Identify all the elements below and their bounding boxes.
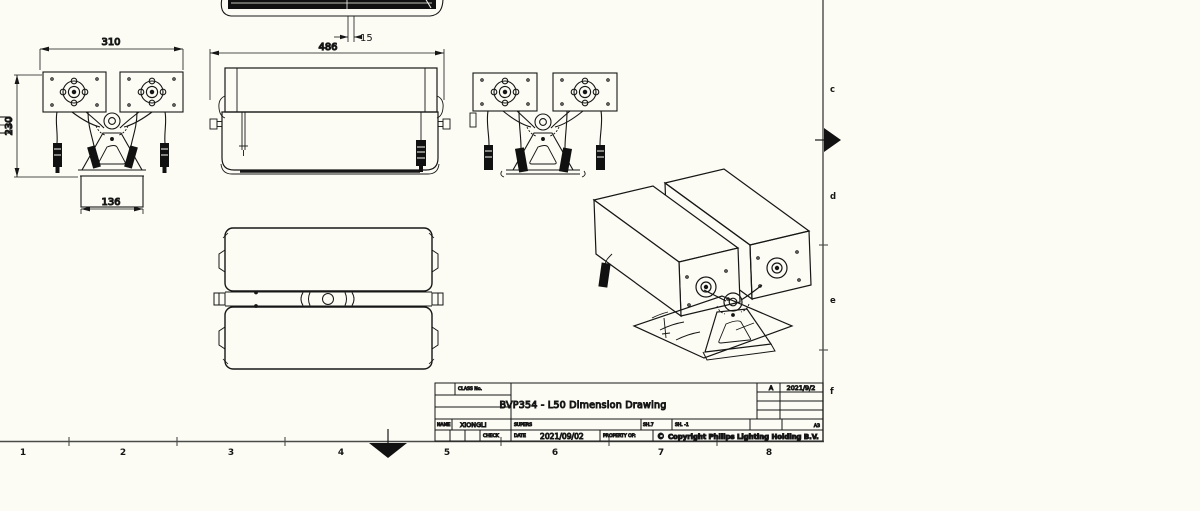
zone-col-1: 1 xyxy=(20,448,26,458)
paper-size: A3 xyxy=(814,423,820,429)
rear-left-plate xyxy=(470,73,537,127)
date-label: DATE xyxy=(514,433,526,439)
scale-value: SH.7 xyxy=(643,422,654,428)
title-block: CLASS No. BVP354 - L50 Dimension Drawing… xyxy=(435,383,823,441)
dim-136-label: 136 xyxy=(101,197,120,208)
copyright-text: Copyright Philips Lighting Holding B.V. xyxy=(668,433,819,441)
front-left-plate xyxy=(43,72,106,112)
zone-col-2: 2 xyxy=(120,448,126,458)
zone-col-3: 3 xyxy=(228,448,234,458)
zone-col-4: 4 xyxy=(338,448,344,458)
zone-row-d: d xyxy=(830,192,836,202)
top-edge-view: 15 xyxy=(221,0,443,44)
property-label: PROPERTY OF: xyxy=(603,433,636,439)
supervisor-label: SUPERS xyxy=(514,422,532,428)
zone-row-f: f xyxy=(830,387,834,397)
revision-date: 2021/9/2 xyxy=(787,384,816,392)
sheet-centre-marker-right xyxy=(815,128,841,152)
rear-base-bracket xyxy=(501,133,585,177)
side-view: 486 xyxy=(210,42,450,174)
drawing-sheet: 1 2 3 4 5 6 7 8 c d e f 310 230 xyxy=(0,0,1200,511)
drawing-title: BVP354 - L50 Dimension Drawing xyxy=(499,400,666,411)
lens-bar xyxy=(228,0,436,9)
zone-col-5: 5 xyxy=(444,448,450,458)
date-value: 2021/09/02 xyxy=(540,432,584,441)
zone-col-8: 8 xyxy=(766,448,772,458)
rear-right-plate xyxy=(553,73,617,111)
dim-310 xyxy=(40,47,183,70)
plan-centre-rail xyxy=(214,291,443,307)
zone-row-e: e xyxy=(830,296,836,306)
front-view: 310 230 xyxy=(0,37,183,214)
plan-head-bottom xyxy=(225,307,432,369)
plan-view xyxy=(214,228,443,369)
copyright-symbol: © xyxy=(657,432,665,441)
side-pin xyxy=(239,112,248,156)
sheet-centre-marker-bottom xyxy=(369,429,407,458)
zone-col-6: 6 xyxy=(552,448,558,458)
dim-15-label: 15 xyxy=(360,33,373,44)
rear-yoke-bracket xyxy=(503,111,583,136)
dim-310-label: 310 xyxy=(101,37,120,48)
rear-cables xyxy=(484,111,605,173)
revision-rev: A xyxy=(769,384,774,392)
front-base-bracket xyxy=(78,133,146,207)
class-label: CLASS No. xyxy=(458,386,482,392)
dim-486 xyxy=(210,49,444,100)
check-label: CHECK xyxy=(483,433,500,439)
rear-view xyxy=(470,73,617,177)
plan-side-tabs xyxy=(219,233,438,364)
cad-drawing-canvas: 1 2 3 4 5 6 7 8 c d e f 310 230 xyxy=(0,0,1200,511)
dim-486-label: 486 xyxy=(318,42,337,53)
zone-col-7: 7 xyxy=(658,448,664,458)
front-right-plate xyxy=(120,72,183,112)
dim-15 xyxy=(334,16,362,42)
front-yoke-bracket xyxy=(72,112,152,135)
name-value: XIONGLI xyxy=(460,421,487,429)
isometric-view xyxy=(594,169,811,360)
name-label: NAME xyxy=(437,422,451,428)
side-cable xyxy=(416,112,426,172)
plan-head-top xyxy=(225,228,432,291)
sheet-value: SH. -1 xyxy=(675,422,689,428)
sheet-frame: 1 2 3 4 5 6 7 8 c d e f xyxy=(0,0,841,458)
zone-row-c: c xyxy=(830,85,835,95)
